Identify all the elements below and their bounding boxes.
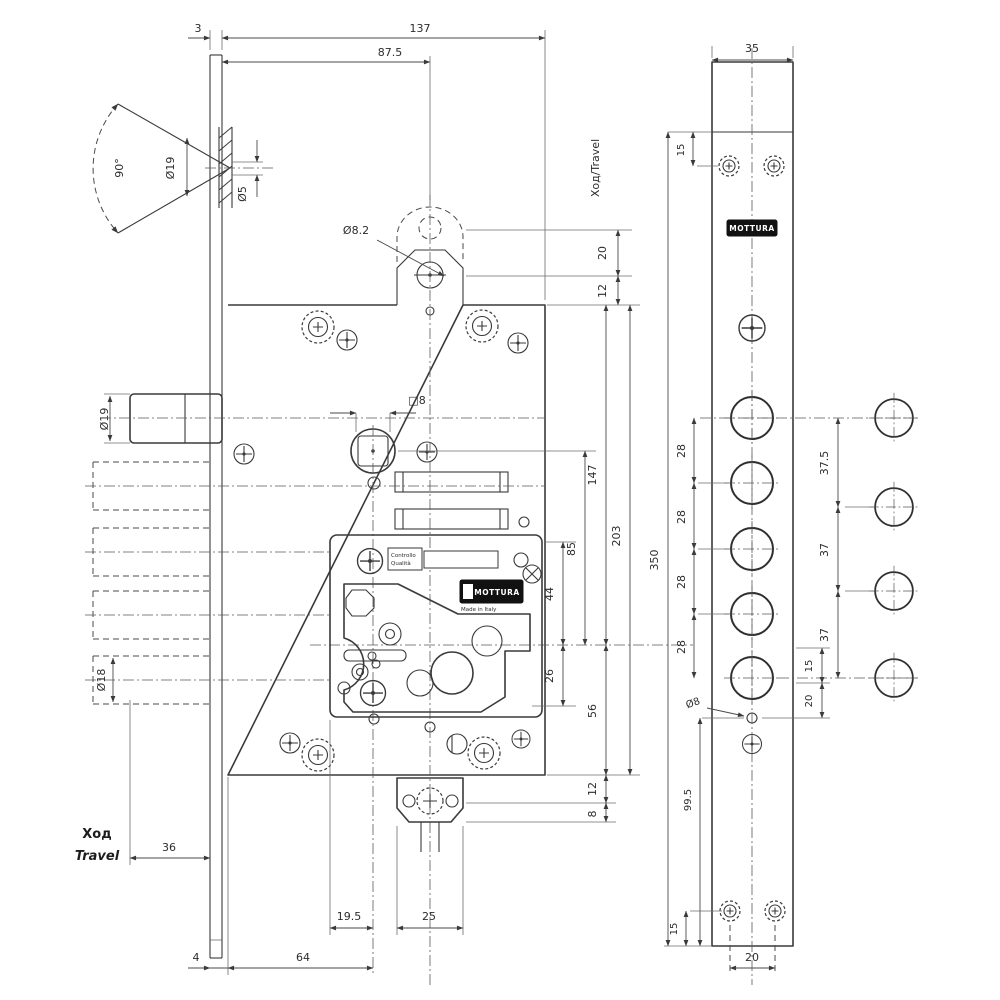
dim-28-4: 28 xyxy=(675,640,688,654)
dim-25: 25 xyxy=(422,910,436,923)
dim-dia19-latch: Ø19 xyxy=(98,408,111,431)
dim-12-bottom: 12 xyxy=(586,782,599,796)
dim-26: 26 xyxy=(543,669,556,683)
dim-85: 85 xyxy=(565,542,578,556)
front-dimensions: 35 15 350 28 28 28 28 37.5 37 xyxy=(648,42,874,968)
phillips-screw xyxy=(512,730,530,748)
dim-87-5: 87.5 xyxy=(378,46,403,59)
dim-37-5: 37.5 xyxy=(818,451,831,476)
dim-203: 203 xyxy=(610,526,623,547)
label-travel: Travel xyxy=(75,849,120,864)
dim-147: 147 xyxy=(586,465,599,486)
side-view: 90° Ø19 Ø5 3 137 87.5 Ø8.2 xyxy=(75,22,693,985)
hex-screw xyxy=(765,901,785,921)
phillips-screw xyxy=(337,330,357,350)
bolt-hole xyxy=(724,521,780,577)
cross-screw xyxy=(523,565,541,583)
knurled-nut xyxy=(466,310,498,342)
aux-latch: Ø8.2 Ход/Travel 20 12 xyxy=(343,139,632,305)
dim-dia19-countersink: Ø19 xyxy=(164,157,177,180)
deadbolt-hidden-3 xyxy=(85,591,332,639)
phillips-screw xyxy=(508,333,528,353)
dim-19-5: 19.5 xyxy=(337,910,362,923)
dim-56: 56 xyxy=(586,704,599,718)
dim-99-5: 99.5 xyxy=(683,789,694,811)
dim-44: 44 xyxy=(543,587,556,601)
label-travel-top: Ход/Travel xyxy=(589,139,602,197)
made-in-italy: Made in Italy xyxy=(461,607,497,613)
hex-screw xyxy=(719,156,739,176)
dim-37-a: 37 xyxy=(818,543,831,557)
stamp-line1: Controllo xyxy=(391,553,416,559)
bolt-end xyxy=(869,566,919,616)
dim-angle-90: 90° xyxy=(113,158,126,178)
deadbolt-hidden-1 xyxy=(85,462,545,510)
dim-15-bottom: 15 xyxy=(669,923,680,936)
dim-dia8-2: Ø8.2 xyxy=(343,224,369,237)
brand-text-body: MOTTURA xyxy=(474,588,519,597)
d-hole xyxy=(447,734,467,754)
bolt-hole xyxy=(724,455,780,511)
dim-35: 35 xyxy=(745,42,759,55)
dim-15-mid: 15 xyxy=(804,660,815,673)
dim-28-3: 28 xyxy=(675,575,688,589)
phillips-screw xyxy=(361,681,386,706)
latch-and-deadbolts: Ø19 Ø18 xyxy=(85,394,545,704)
dim-dia8-hole: Ø8 xyxy=(684,695,701,711)
deadbolt-hidden-2 xyxy=(85,528,332,576)
bolt-hole xyxy=(724,586,780,642)
phillips-screw xyxy=(234,444,254,464)
bolt-hole xyxy=(724,650,780,706)
dim-64: 64 xyxy=(296,951,310,964)
dim-dia18: Ø18 xyxy=(95,669,108,692)
dim-28-2: 28 xyxy=(675,510,688,524)
hex-screw xyxy=(720,901,740,921)
dim-137: 137 xyxy=(410,22,431,35)
technical-drawing-lock: 90° Ø19 Ø5 3 137 87.5 Ø8.2 xyxy=(0,0,1000,1000)
brand-label-faceplate: MOTTURA xyxy=(727,220,777,236)
dim-dia5: Ø5 xyxy=(236,186,249,202)
lock-body: □8 xyxy=(228,305,545,775)
cover-plate: Controllo Qualità MOTTURA Made in Italy xyxy=(330,535,542,717)
label-hod: Ход xyxy=(82,827,111,842)
phillips-screw xyxy=(417,442,437,462)
dim-20-top: 20 xyxy=(596,246,609,260)
phillips-screw xyxy=(743,735,762,754)
dim-4: 4 xyxy=(193,951,200,964)
phillips-screw xyxy=(739,315,765,341)
knurled-nut xyxy=(468,737,500,769)
dim-20-mid: 20 xyxy=(804,695,815,708)
hex-screw xyxy=(764,156,784,176)
dim-36: 36 xyxy=(162,841,176,854)
bolt-end-circles xyxy=(700,393,919,703)
dim-350: 350 xyxy=(648,550,661,571)
bolt-end xyxy=(869,482,919,532)
latch-slots xyxy=(395,472,529,529)
spindle-hole: □8 xyxy=(330,394,426,473)
deadbolt-hidden-4 xyxy=(85,656,332,704)
phillips-screw xyxy=(280,733,300,753)
bottom-dimensions: 36 Ход Travel 19.5 25 4 64 xyxy=(75,700,463,975)
dim-20-bottom: 20 xyxy=(745,951,759,964)
dim-12-top: 12 xyxy=(596,284,609,298)
dim-3: 3 xyxy=(195,22,202,35)
faceplate-front: MOTTURA xyxy=(712,48,793,985)
knurled-nut xyxy=(302,311,334,343)
front-view: MOTTURA xyxy=(648,42,919,985)
dim-28-1: 28 xyxy=(675,444,688,458)
brand-label-body: MOTTURA Made in Italy xyxy=(460,580,523,613)
dim-15-top: 15 xyxy=(676,144,687,157)
top-dimensions: 3 137 87.5 xyxy=(188,22,545,300)
stamp-line2: Qualità xyxy=(391,560,411,567)
knurled-nut xyxy=(302,739,334,771)
dim-37-b: 37 xyxy=(818,628,831,642)
countersink-detail: 90° Ø19 Ø5 xyxy=(93,104,275,233)
drawing-canvas: 90° Ø19 Ø5 3 137 87.5 Ø8.2 xyxy=(0,0,1000,1000)
faceplate-side-strip xyxy=(210,55,222,958)
brand-text-faceplate: MOTTURA xyxy=(729,224,774,233)
dim-square-8: □8 xyxy=(408,394,425,407)
phillips-screw xyxy=(358,549,383,574)
dim-8-bottom: 8 xyxy=(586,811,599,818)
